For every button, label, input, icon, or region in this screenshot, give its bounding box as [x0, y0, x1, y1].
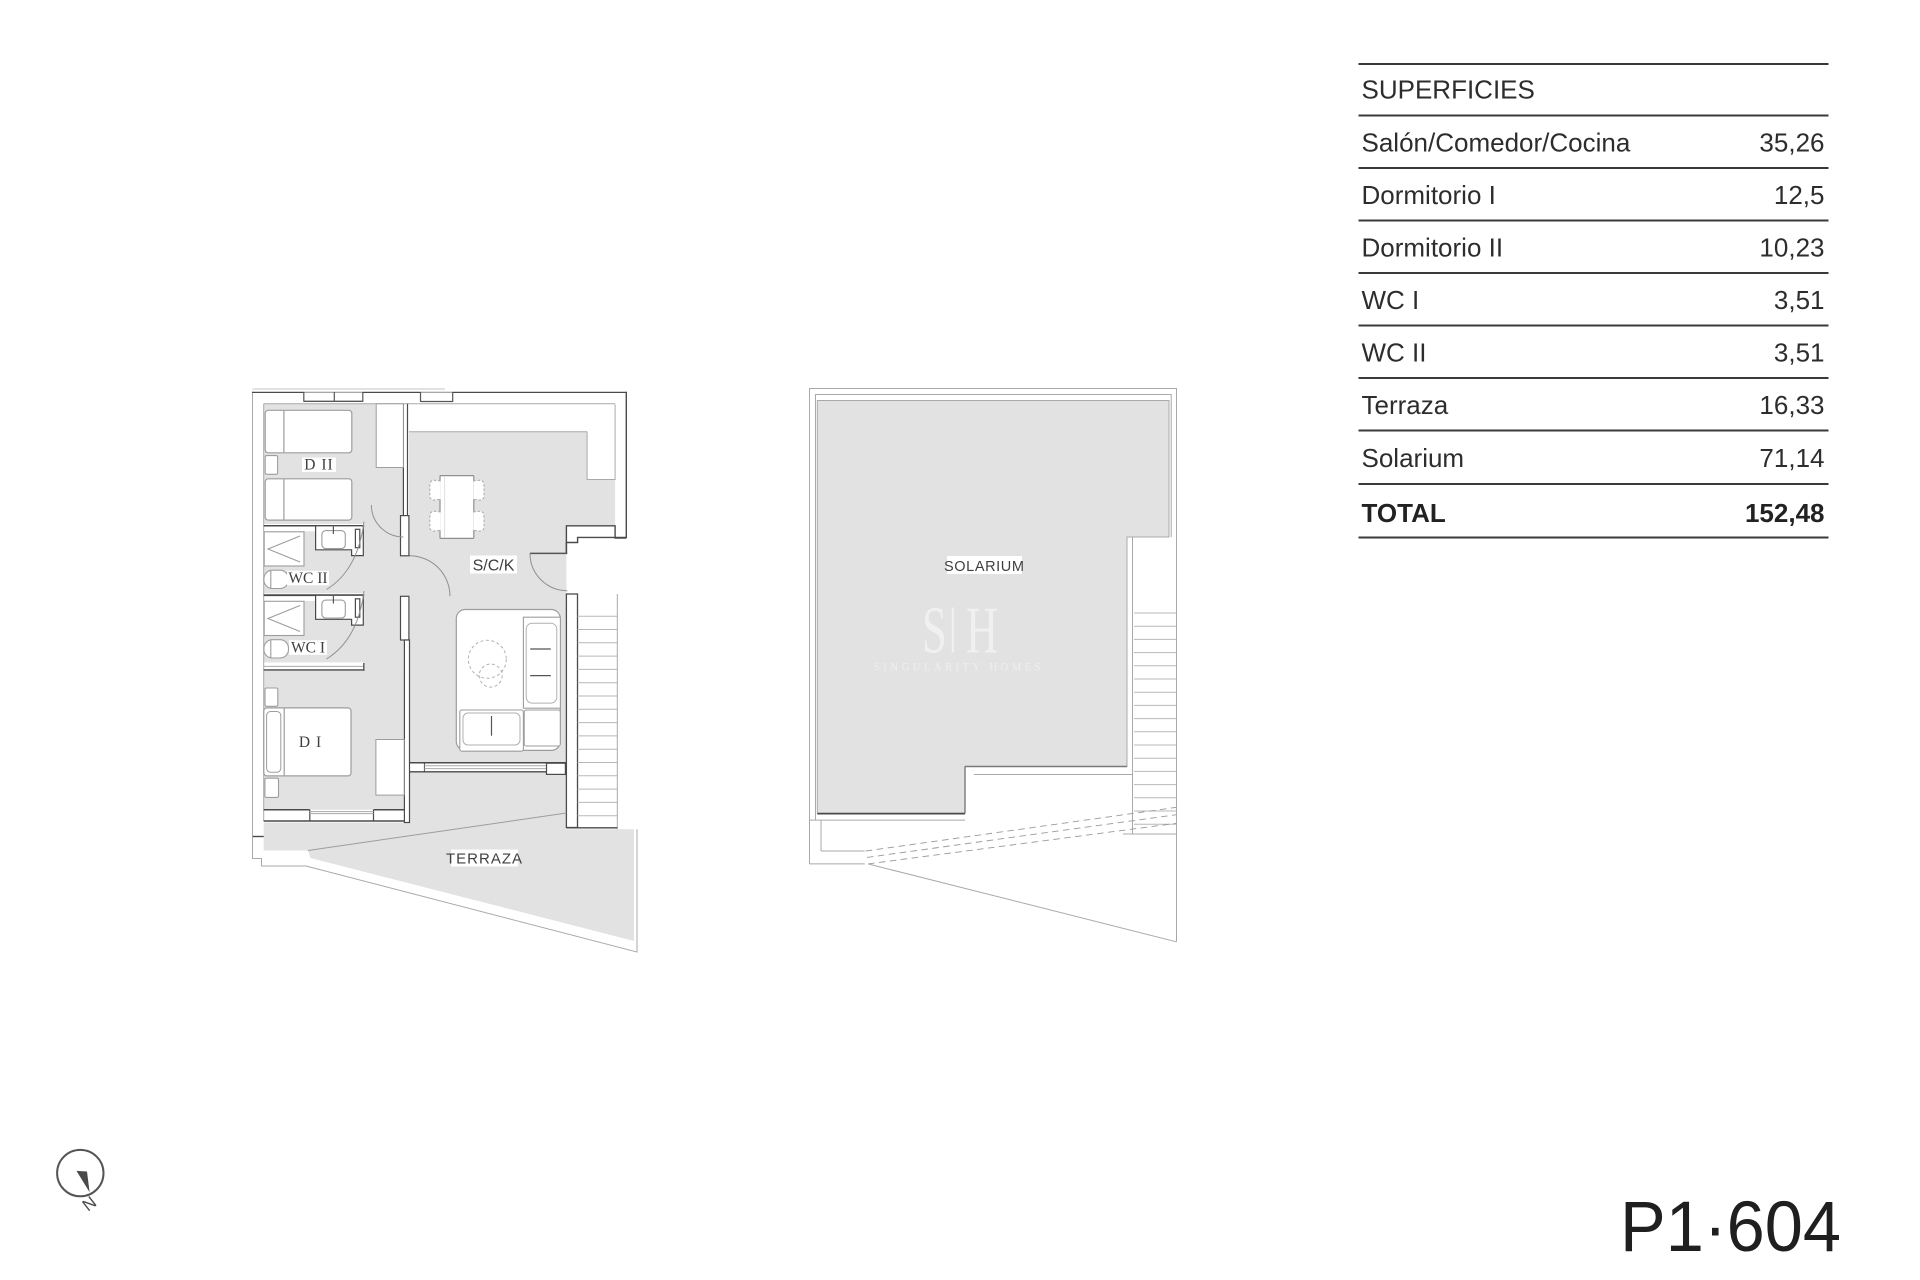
svg-text:TERRAZA: TERRAZA — [446, 851, 523, 868]
svg-text:D I: D I — [299, 734, 322, 751]
svg-text:35,26: 35,26 — [1759, 128, 1824, 158]
svg-text:Salón/Comedor/Cocina: Salón/Comedor/Cocina — [1362, 128, 1631, 158]
svg-text:Dormitorio II: Dormitorio II — [1362, 233, 1504, 263]
svg-text:WC II: WC II — [1362, 338, 1427, 368]
svg-text:Terraza: Terraza — [1362, 390, 1449, 420]
svg-text:152,48: 152,48 — [1745, 498, 1825, 528]
svg-text:D II: D II — [304, 457, 333, 474]
svg-text:3,51: 3,51 — [1774, 338, 1825, 368]
svg-text:WC II: WC II — [288, 570, 327, 587]
svg-text:S/C/K: S/C/K — [473, 558, 515, 575]
svg-text:3,51: 3,51 — [1774, 285, 1825, 315]
svg-text:WC I: WC I — [291, 639, 325, 656]
svg-text:SUPERFICIES: SUPERFICIES — [1362, 75, 1535, 105]
svg-text:Dormitorio I: Dormitorio I — [1362, 180, 1496, 210]
svg-text:Solarium: Solarium — [1362, 443, 1465, 473]
svg-text:TOTAL: TOTAL — [1362, 498, 1446, 528]
svg-text:71,14: 71,14 — [1759, 443, 1824, 473]
svg-text:SINGULARITY HOMES: SINGULARITY HOMES — [874, 660, 1044, 674]
svg-text:16,33: 16,33 — [1759, 390, 1824, 420]
svg-text:H: H — [966, 593, 998, 667]
svg-text:10,23: 10,23 — [1759, 233, 1824, 263]
svg-text:P1·604: P1·604 — [1620, 1188, 1841, 1267]
svg-text:WC I: WC I — [1362, 285, 1420, 315]
svg-text:12,5: 12,5 — [1774, 180, 1825, 210]
svg-text:S: S — [922, 593, 947, 667]
svg-text:SOLARIUM: SOLARIUM — [944, 559, 1025, 575]
